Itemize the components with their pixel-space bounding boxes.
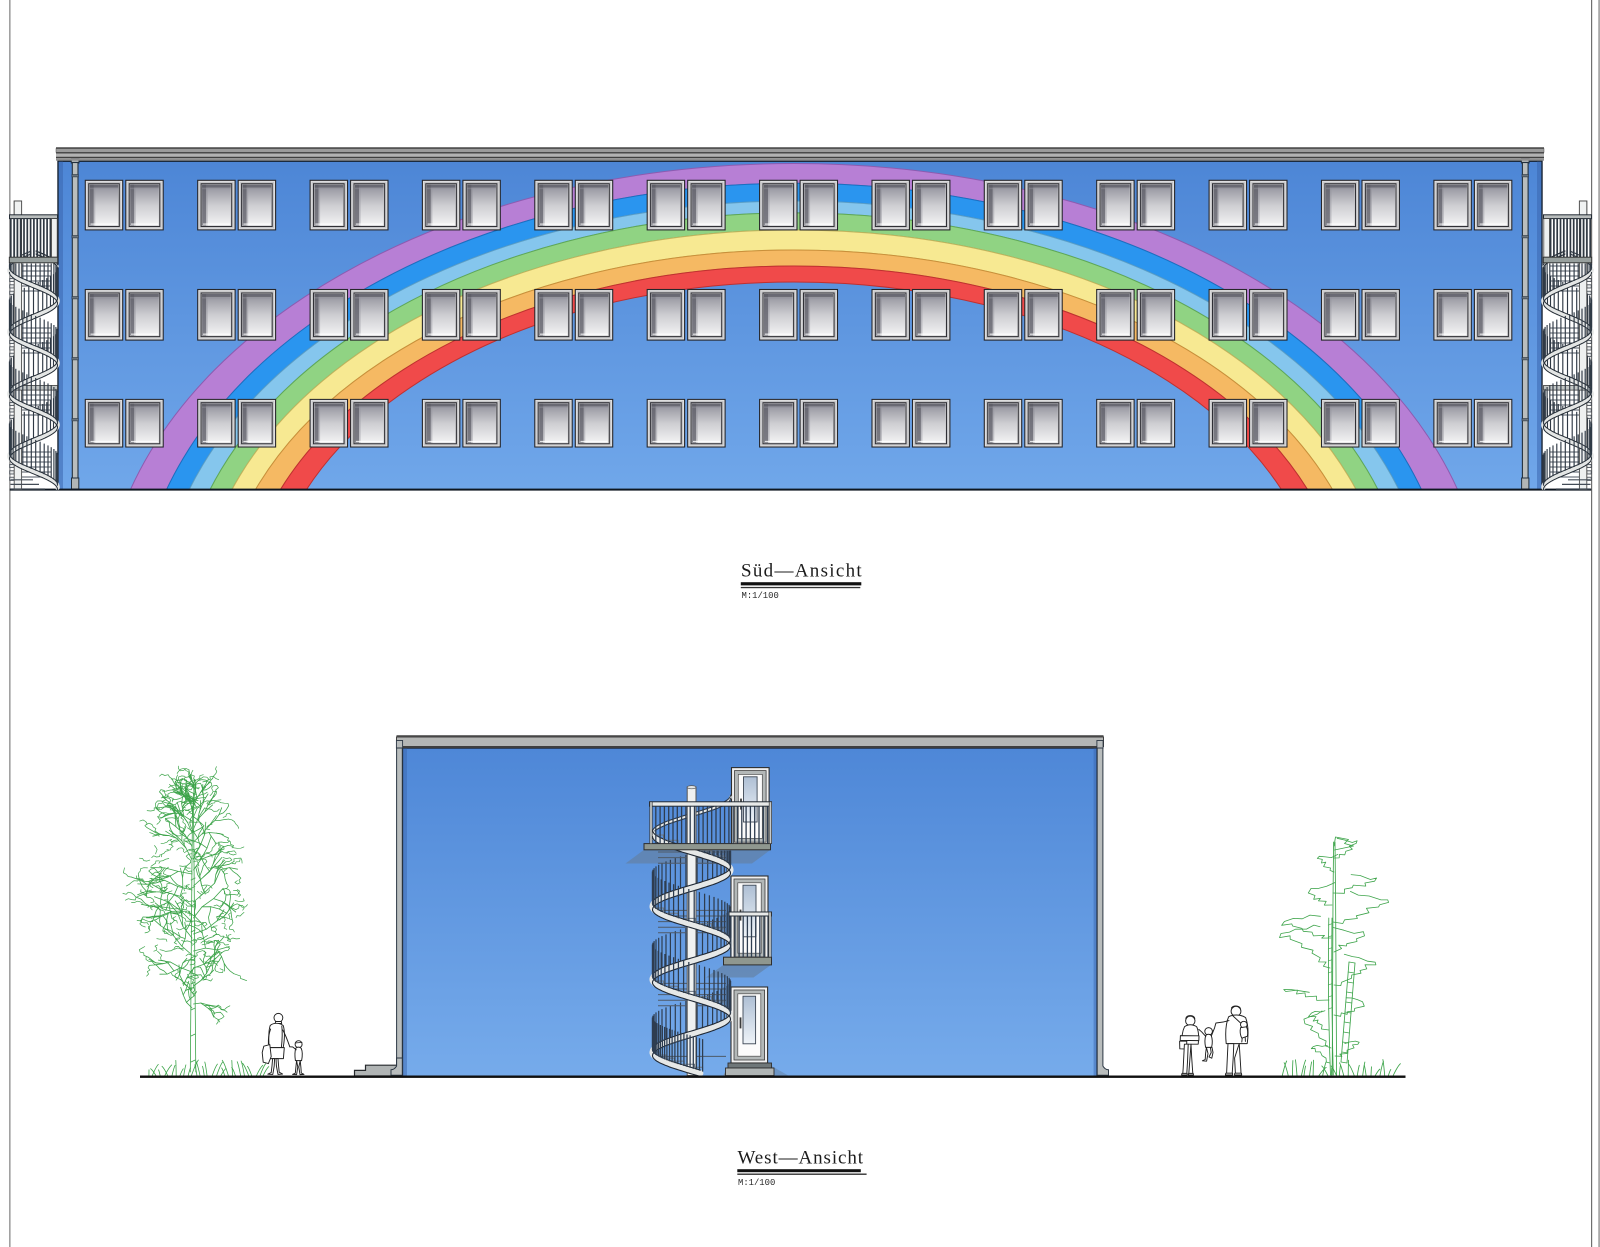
- svg-text:M:1/100: M:1/100: [738, 1178, 775, 1188]
- svg-text:West—Ansicht: West—Ansicht: [738, 1147, 864, 1168]
- svg-text:Süd—Ansicht: Süd—Ansicht: [741, 560, 863, 581]
- svg-text:M:1/100: M:1/100: [742, 591, 779, 601]
